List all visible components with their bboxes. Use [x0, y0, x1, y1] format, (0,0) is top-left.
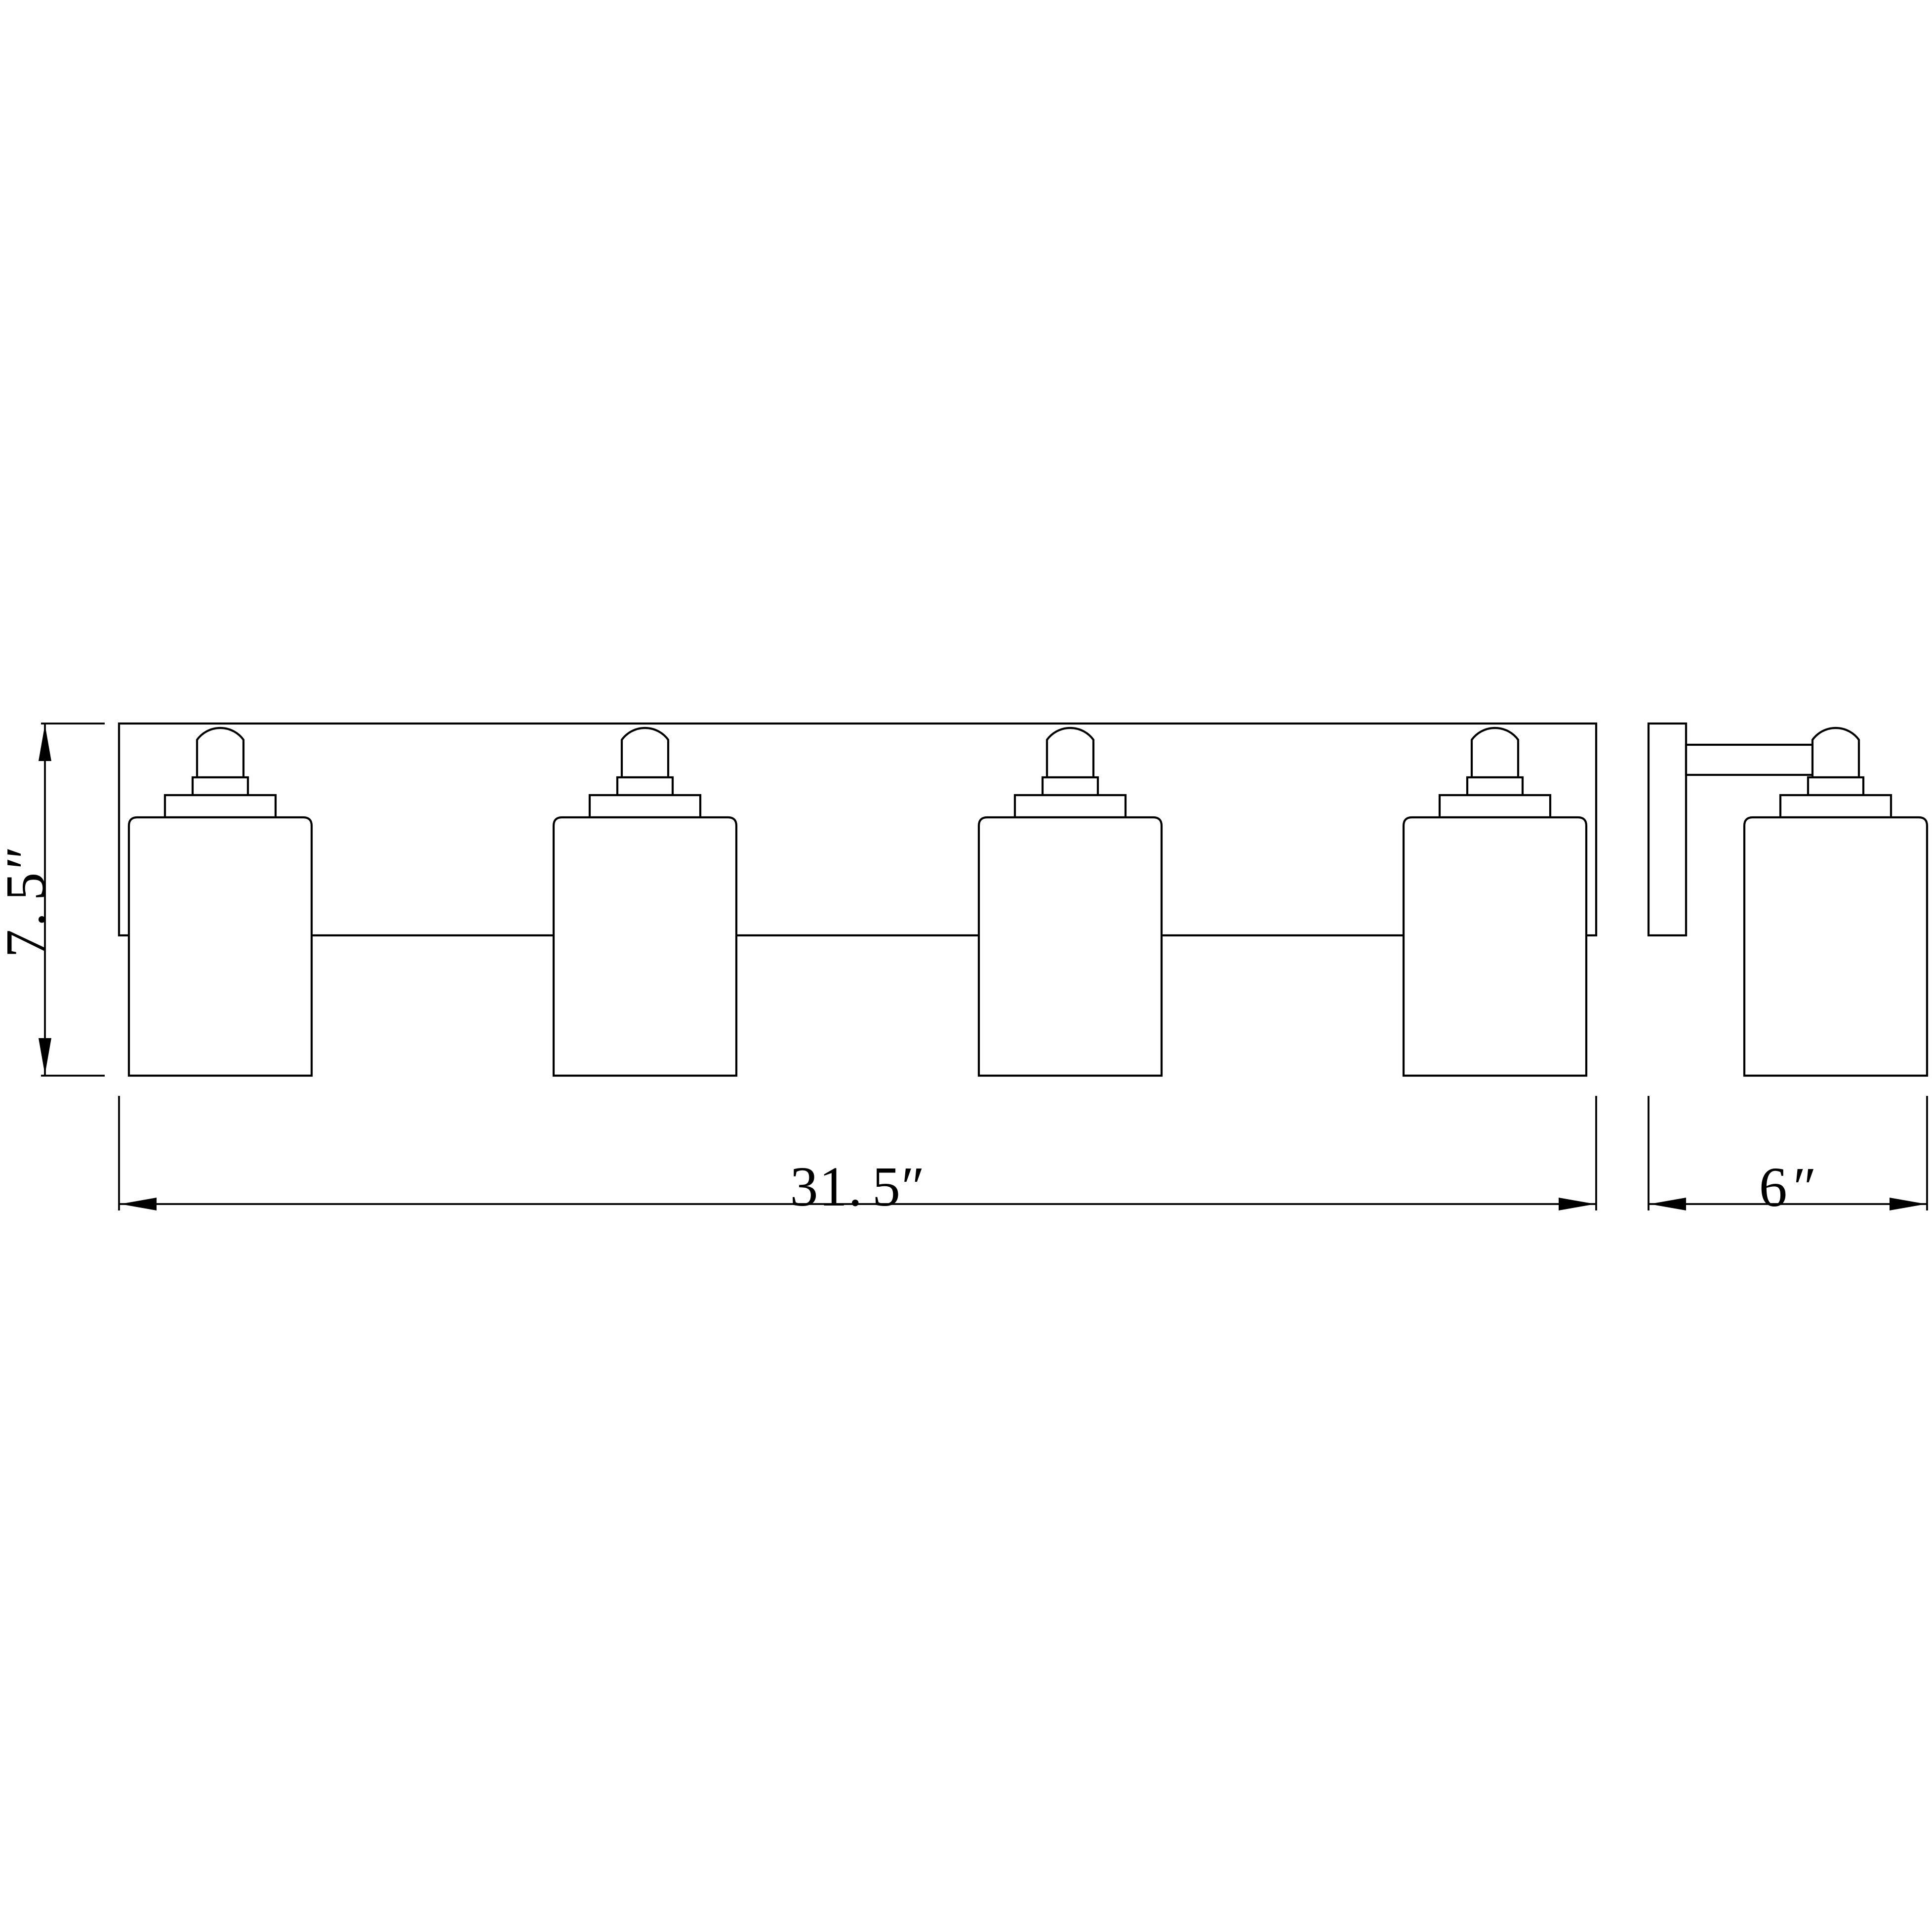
svg-text:31.5″: 31.5″	[790, 1155, 926, 1218]
svg-text:7.5″: 7.5″	[0, 843, 57, 958]
